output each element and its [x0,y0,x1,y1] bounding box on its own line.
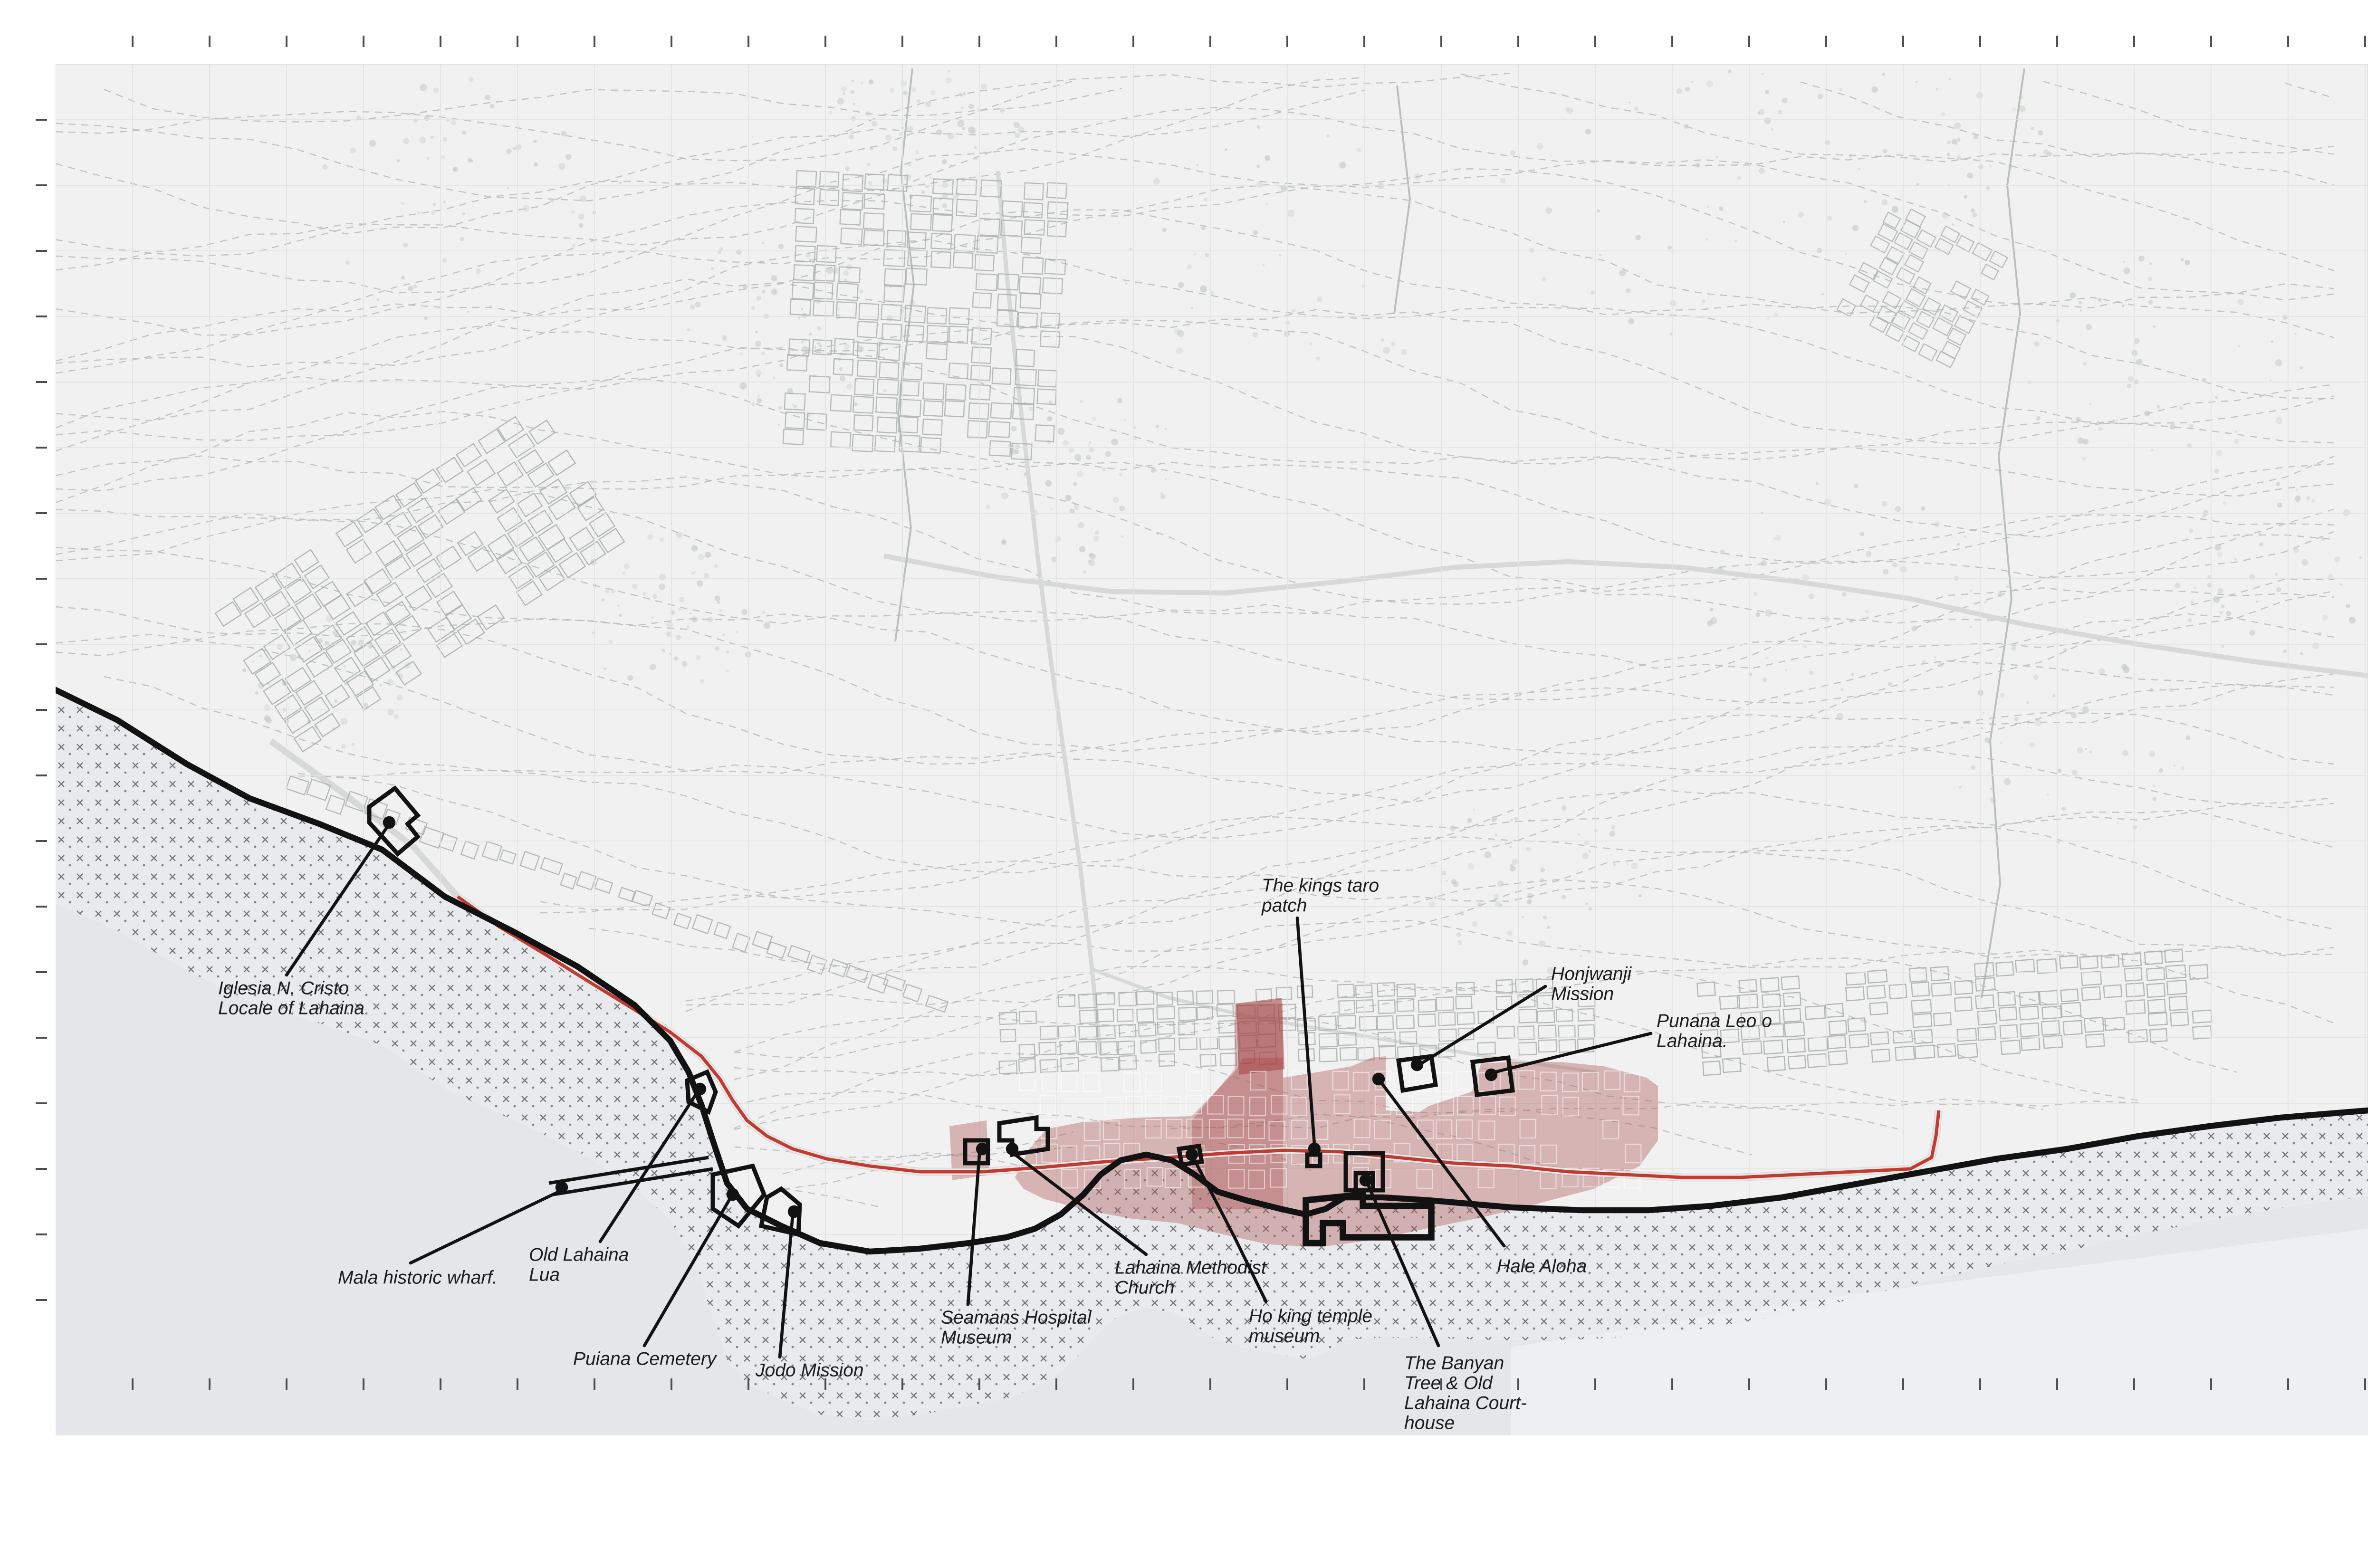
vegetation-dot [419,136,426,143]
vegetation-dot [2116,420,2118,421]
vegetation-dot [1001,492,1008,499]
vegetation-dot [2000,693,2005,698]
vegetation-dot [2235,430,2237,433]
vegetation-dot [1810,671,1813,675]
vegetation-dot [700,679,704,683]
vegetation-dot [417,211,420,214]
vegetation-dot [2148,300,2153,305]
vegetation-dot [1401,349,1407,355]
vegetation-dot [2124,268,2130,274]
vegetation-dot [958,120,965,127]
site-label-line: Ho king temple [1249,1306,1372,1327]
vegetation-dot [2276,482,2280,486]
vegetation-dot [430,135,433,139]
vegetation-dot [660,537,664,542]
vegetation-dot [2271,340,2273,343]
vegetation-dot [859,290,863,294]
site-marker-dot-old-lahaina-lua [694,1083,706,1095]
vegetation-dot [819,344,823,348]
vegetation-dot [2296,488,2298,491]
vegetation-dot [1543,916,1547,919]
vegetation-dot [1767,317,1770,320]
vegetation-dot [2238,299,2244,305]
vegetation-dot [2077,747,2083,753]
vegetation-dot [1339,162,1346,168]
vegetation-dot [2138,256,2145,262]
vegetation-dot [852,80,854,82]
vegetation-dot [1414,173,1420,180]
vegetation-dot [1765,90,1769,94]
vegetation-dot [676,635,681,640]
vegetation-dot [1065,495,1071,501]
vegetation-dot [1133,436,1137,440]
vegetation-dot [858,240,860,243]
vegetation-dot [1442,871,1447,876]
vegetation-dot [2144,411,2150,416]
vegetation-dot [1765,657,1768,659]
vegetation-dot [2185,736,2190,740]
vegetation-dot [2076,417,2080,422]
vegetation-dot [1045,480,1052,487]
vegetation-dot [1253,230,1258,235]
vegetation-dot [1292,309,1295,312]
vegetation-dot [397,695,403,701]
vegetation-dot [841,86,846,91]
vegetation-dot [773,377,776,379]
vegetation-dot [1001,540,1006,545]
vegetation-dot [601,598,604,602]
vegetation-dot [322,164,327,170]
site-marker-dot-mala-historic-wharf [556,1181,568,1194]
vegetation-dot [1973,212,1977,217]
vegetation-dot [1467,818,1472,822]
vegetation-dot [1753,592,1758,596]
vegetation-dot [962,127,965,130]
vegetation-dot [907,126,913,133]
site-label-line: Tree & Old [1404,1373,1493,1394]
vegetation-dot [242,668,246,672]
vegetation-dot [948,133,954,139]
vegetation-dot [1089,441,1092,444]
vegetation-dot [1511,819,1513,822]
vegetation-dot [2152,797,2156,801]
vegetation-dot [1626,288,1631,294]
vegetation-dot [2098,427,2103,431]
site-label-line: museum [1249,1326,1320,1347]
vegetation-dot [1971,209,1975,213]
vegetation-dot [764,622,770,629]
vegetation-dot [963,92,966,96]
vegetation-dot [1492,816,1497,822]
vegetation-dot [255,691,259,695]
vegetation-dot [619,182,622,184]
vegetation-dot [1809,593,1815,600]
vegetation-dot [1165,478,1167,480]
vegetation-dot [1484,851,1491,859]
vegetation-dot [1933,619,1936,622]
vegetation-dot [2072,770,2078,775]
vegetation-dot [2153,325,2156,328]
vegetation-dot [860,278,862,280]
vegetation-dot [2004,778,2011,785]
vegetation-dot [1522,916,1524,918]
vegetation-dot [1433,865,1435,867]
vegetation-dot [1178,282,1184,288]
vegetation-dot [1542,277,1546,281]
vegetation-dot [1816,482,1819,485]
vegetation-dot [1839,88,1843,91]
vegetation-dot [2031,127,2034,130]
vegetation-dot [1628,318,1634,325]
vegetation-dot [826,268,833,274]
vegetation-dot [2098,668,2105,675]
vegetation-dot [809,333,813,336]
vegetation-dot [981,84,987,90]
vegetation-dot [1916,81,1918,83]
vegetation-dot [1892,562,1897,567]
vegetation-dot [2223,501,2226,505]
vegetation-dot [1263,264,1265,266]
vegetation-dot [277,644,283,650]
vegetation-dot [833,267,839,274]
vegetation-dot [960,94,963,96]
vegetation-dot [1523,959,1529,966]
vegetation-dot [1676,88,1682,94]
site-marker-dot-ho-king-temple-museum [1186,1148,1198,1161]
vegetation-dot [408,286,413,291]
vegetation-dot [451,120,456,125]
vegetation-dot [1762,73,1764,75]
vegetation-dot [1691,81,1693,83]
vegetation-dot [1073,482,1077,486]
site-label-line: Hale Aloha [1497,1256,1587,1277]
vegetation-dot [1459,911,1464,916]
vegetation-dot [885,134,892,141]
vegetation-dot [1934,522,1940,527]
vegetation-dot [1883,569,1888,574]
vegetation-dot [1837,713,1843,720]
vegetation-dot [1156,424,1159,428]
vegetation-dot [1941,112,1945,116]
vegetation-dot [1824,616,1830,622]
vegetation-dot [1378,183,1384,190]
vegetation-dot [2299,366,2303,369]
vegetation-dot [1449,825,1456,832]
vegetation-dot [1013,131,1016,134]
vegetation-dot [1111,439,1118,445]
vegetation-dot [2179,406,2183,410]
vegetation-dot [2149,262,2152,265]
vegetation-dot [1971,765,1976,770]
vegetation-dot [1707,621,1713,627]
vegetation-dot [1599,254,1601,256]
vegetation-dot [1621,161,1624,163]
vegetation-dot [433,203,436,206]
vegetation-dot [1938,662,1944,668]
vegetation-dot [460,237,464,241]
vegetation-dot [778,406,782,410]
vegetation-dot [915,158,917,161]
vegetation-dot [1538,940,1545,947]
vegetation-dot [1771,128,1774,131]
vegetation-dot [1187,265,1192,269]
site-label-line: patch [1261,896,1307,916]
site-marker-dot-lahaina-methodist-church [1006,1143,1018,1155]
vegetation-dot [986,505,990,509]
vegetation-dot [617,604,620,607]
vegetation-dot [968,126,975,134]
vegetation-dot [2191,601,2194,604]
vegetation-dot [2275,573,2278,576]
vegetation-dot [1705,239,1708,241]
vegetation-dot [1069,448,1074,453]
vegetation-dot [2249,630,2255,636]
vegetation-dot [1586,902,1588,905]
vegetation-dot [561,131,567,136]
page: Iglesia N. CristoLocale of LahainaMala h… [0,0,2376,1568]
vegetation-dot [778,244,784,249]
vegetation-dot [619,614,622,617]
vegetation-dot [443,201,446,204]
vegetation-dot [420,84,427,91]
vegetation-dot [1609,831,1615,837]
vegetation-dot [1840,688,1844,691]
vegetation-dot [413,285,417,288]
vegetation-dot [1080,400,1083,403]
vegetation-dot [2011,646,2016,651]
vegetation-dot [1074,506,1079,510]
vegetation-dot [1758,109,1764,115]
vegetation-dot [1527,899,1532,905]
vegetation-dot [1265,155,1270,161]
vegetation-dot [1578,833,1581,836]
vegetation-dot [851,90,855,94]
vegetation-dot [817,342,820,345]
vegetation-dot [1635,235,1640,240]
vegetation-dot [1281,185,1287,191]
vegetation-dot [697,580,703,586]
vegetation-dot [853,402,857,406]
vegetation-dot [1947,141,1951,144]
site-label-line: Punana Leo o [1657,1011,1772,1032]
vegetation-dot [1821,293,1824,295]
vegetation-dot [861,82,863,85]
vegetation-dot [674,657,678,661]
vegetation-dot [259,654,262,657]
vegetation-dot [678,608,681,612]
vegetation-dot [930,90,935,95]
vegetation-dot [722,633,725,636]
vegetation-dot [485,95,490,100]
vegetation-dot [845,166,850,171]
vegetation-dot [1540,878,1544,882]
vegetation-dot [1854,484,1859,488]
vegetation-dot [1882,501,1887,507]
vegetation-dot [1381,339,1384,342]
vegetation-dot [1849,154,1852,158]
vegetation-dot [1728,69,1732,73]
vegetation-dot [2061,807,2066,811]
vegetation-dot [814,346,816,349]
vegetation-dot [1845,253,1848,255]
vegetation-dot [2122,750,2128,756]
vegetation-dot [2036,718,2039,721]
vegetation-dot [946,77,952,84]
vegetation-dot [2216,450,2223,457]
vegetation-dot [1201,226,1205,230]
vegetation-dot [1547,926,1550,929]
vegetation-dot [1457,940,1462,945]
vegetation-dot [843,344,850,350]
vegetation-dot [726,650,729,654]
vegetation-dot [2276,587,2281,592]
vegetation-dot [2339,583,2342,586]
site-label-line: Lua [529,1265,560,1285]
vegetation-dot [1970,626,1972,628]
vegetation-dot [393,714,399,719]
vegetation-dot [1594,829,1598,832]
vegetation-dot [779,363,783,367]
vegetation-dot [1160,494,1166,499]
vegetation-dot [467,158,472,163]
vegetation-dot [1006,468,1008,470]
vegetation-dot [1088,559,1092,563]
vegetation-dot [326,615,333,622]
vegetation-dot [571,210,575,214]
site-marker-dot-puiana-cemetery [727,1188,739,1201]
vegetation-dot [1759,168,1765,174]
vegetation-dot [1619,270,1626,277]
vegetation-dot [771,275,777,281]
vegetation-dot [1156,532,1159,535]
vegetation-dot [252,660,255,663]
vegetation-dot [382,655,384,658]
vegetation-dot [390,639,393,641]
site-label-line: Puiana Cemetery [573,1349,718,1369]
vegetation-dot [2318,632,2322,636]
vegetation-dot [778,423,780,426]
vegetation-dot [1883,149,1887,153]
vegetation-dot [2083,362,2087,365]
vegetation-dot [1017,126,1024,133]
site-label-iglesia-n-cristo: Iglesia N. CristoLocale of Lahaina [218,978,364,1019]
vegetation-dot [837,98,844,105]
vegetation-dot [1859,168,1860,170]
vegetation-dot [2034,341,2039,346]
vegetation-dot [2221,644,2224,648]
vegetation-dot [558,163,565,170]
vegetation-dot [1582,852,1589,859]
vegetation-dot [1083,570,1086,574]
vegetation-dot [1545,208,1552,214]
vegetation-dot [829,111,833,115]
vegetation-dot [755,341,761,347]
vegetation-dot [2214,468,2219,473]
vegetation-dot [691,572,694,574]
vegetation-dot [533,140,537,143]
site-marker-dot-banyan-tree-courthouse [1360,1174,1372,1186]
vegetation-dot [698,554,704,560]
vegetation-dot [609,640,613,644]
vegetation-dot [1871,86,1878,93]
vegetation-dot [651,617,654,619]
lahaina-historic-sites-map: Iglesia N. CristoLocale of LahainaMala h… [0,0,2376,1568]
vegetation-dot [2294,333,2297,335]
vegetation-dot [1088,445,1090,447]
vegetation-dot [1947,153,1950,156]
vegetation-dot [1011,426,1016,431]
vegetation-dot [1696,163,1700,168]
vegetation-dot [2036,416,2041,421]
vegetation-dot [2047,152,2052,157]
vegetation-dot [1983,712,1984,714]
vegetation-dot [687,625,690,629]
vegetation-dot [1597,209,1600,212]
vegetation-dot [1176,347,1183,354]
vegetation-dot [1706,206,1709,208]
vegetation-dot [2294,548,2299,553]
vegetation-dot [719,609,723,612]
vegetation-dot [2014,717,2019,721]
vegetation-dot [1174,328,1180,335]
vegetation-dot [840,375,845,381]
vegetation-dot [853,103,855,105]
vegetation-dot [579,223,584,228]
district-patch-deep [1236,998,1284,1075]
vegetation-dot [1472,921,1478,927]
vegetation-dot [929,176,932,179]
vegetation-dot [2215,396,2218,399]
vegetation-dot [1761,560,1767,566]
vegetation-dot [843,92,846,96]
vegetation-dot [1764,118,1771,124]
vegetation-dot [715,595,720,601]
site-marker-dot-hale-aloha [1372,1073,1385,1085]
vegetation-dot [344,665,346,668]
vegetation-dot [1473,809,1475,811]
vegetation-dot [872,121,878,127]
vegetation-dot [1000,108,1005,113]
vegetation-dot [1565,107,1569,111]
vegetation-dot [1981,727,1983,729]
vegetation-dot [1756,612,1761,617]
vegetation-dot [489,305,492,307]
vegetation-dot [757,398,762,403]
vegetation-dot [1164,428,1167,430]
vegetation-dot [687,328,690,331]
vegetation-dot [2321,537,2325,541]
vegetation-dot [2311,499,2315,503]
vegetation-dot [1125,282,1128,285]
vegetation-dot [1978,164,1983,170]
vegetation-dot [666,631,671,637]
vegetation-dot [866,111,871,116]
vegetation-dot [1734,239,1737,242]
vegetation-dot [1119,506,1125,512]
vegetation-dot [1076,544,1078,546]
vegetation-dot [1922,660,1926,665]
vegetation-dot [805,252,811,258]
vegetation-dot [1638,894,1642,897]
site-label-line: Jodo Mission [755,1360,864,1381]
vegetation-dot [2132,825,2137,830]
vegetation-dot [516,144,522,150]
vegetation-dot [2194,587,2196,589]
vegetation-dot [632,583,638,589]
vegetation-dot [2239,495,2242,498]
vegetation-dot [711,267,714,270]
vegetation-dot [2300,652,2303,656]
